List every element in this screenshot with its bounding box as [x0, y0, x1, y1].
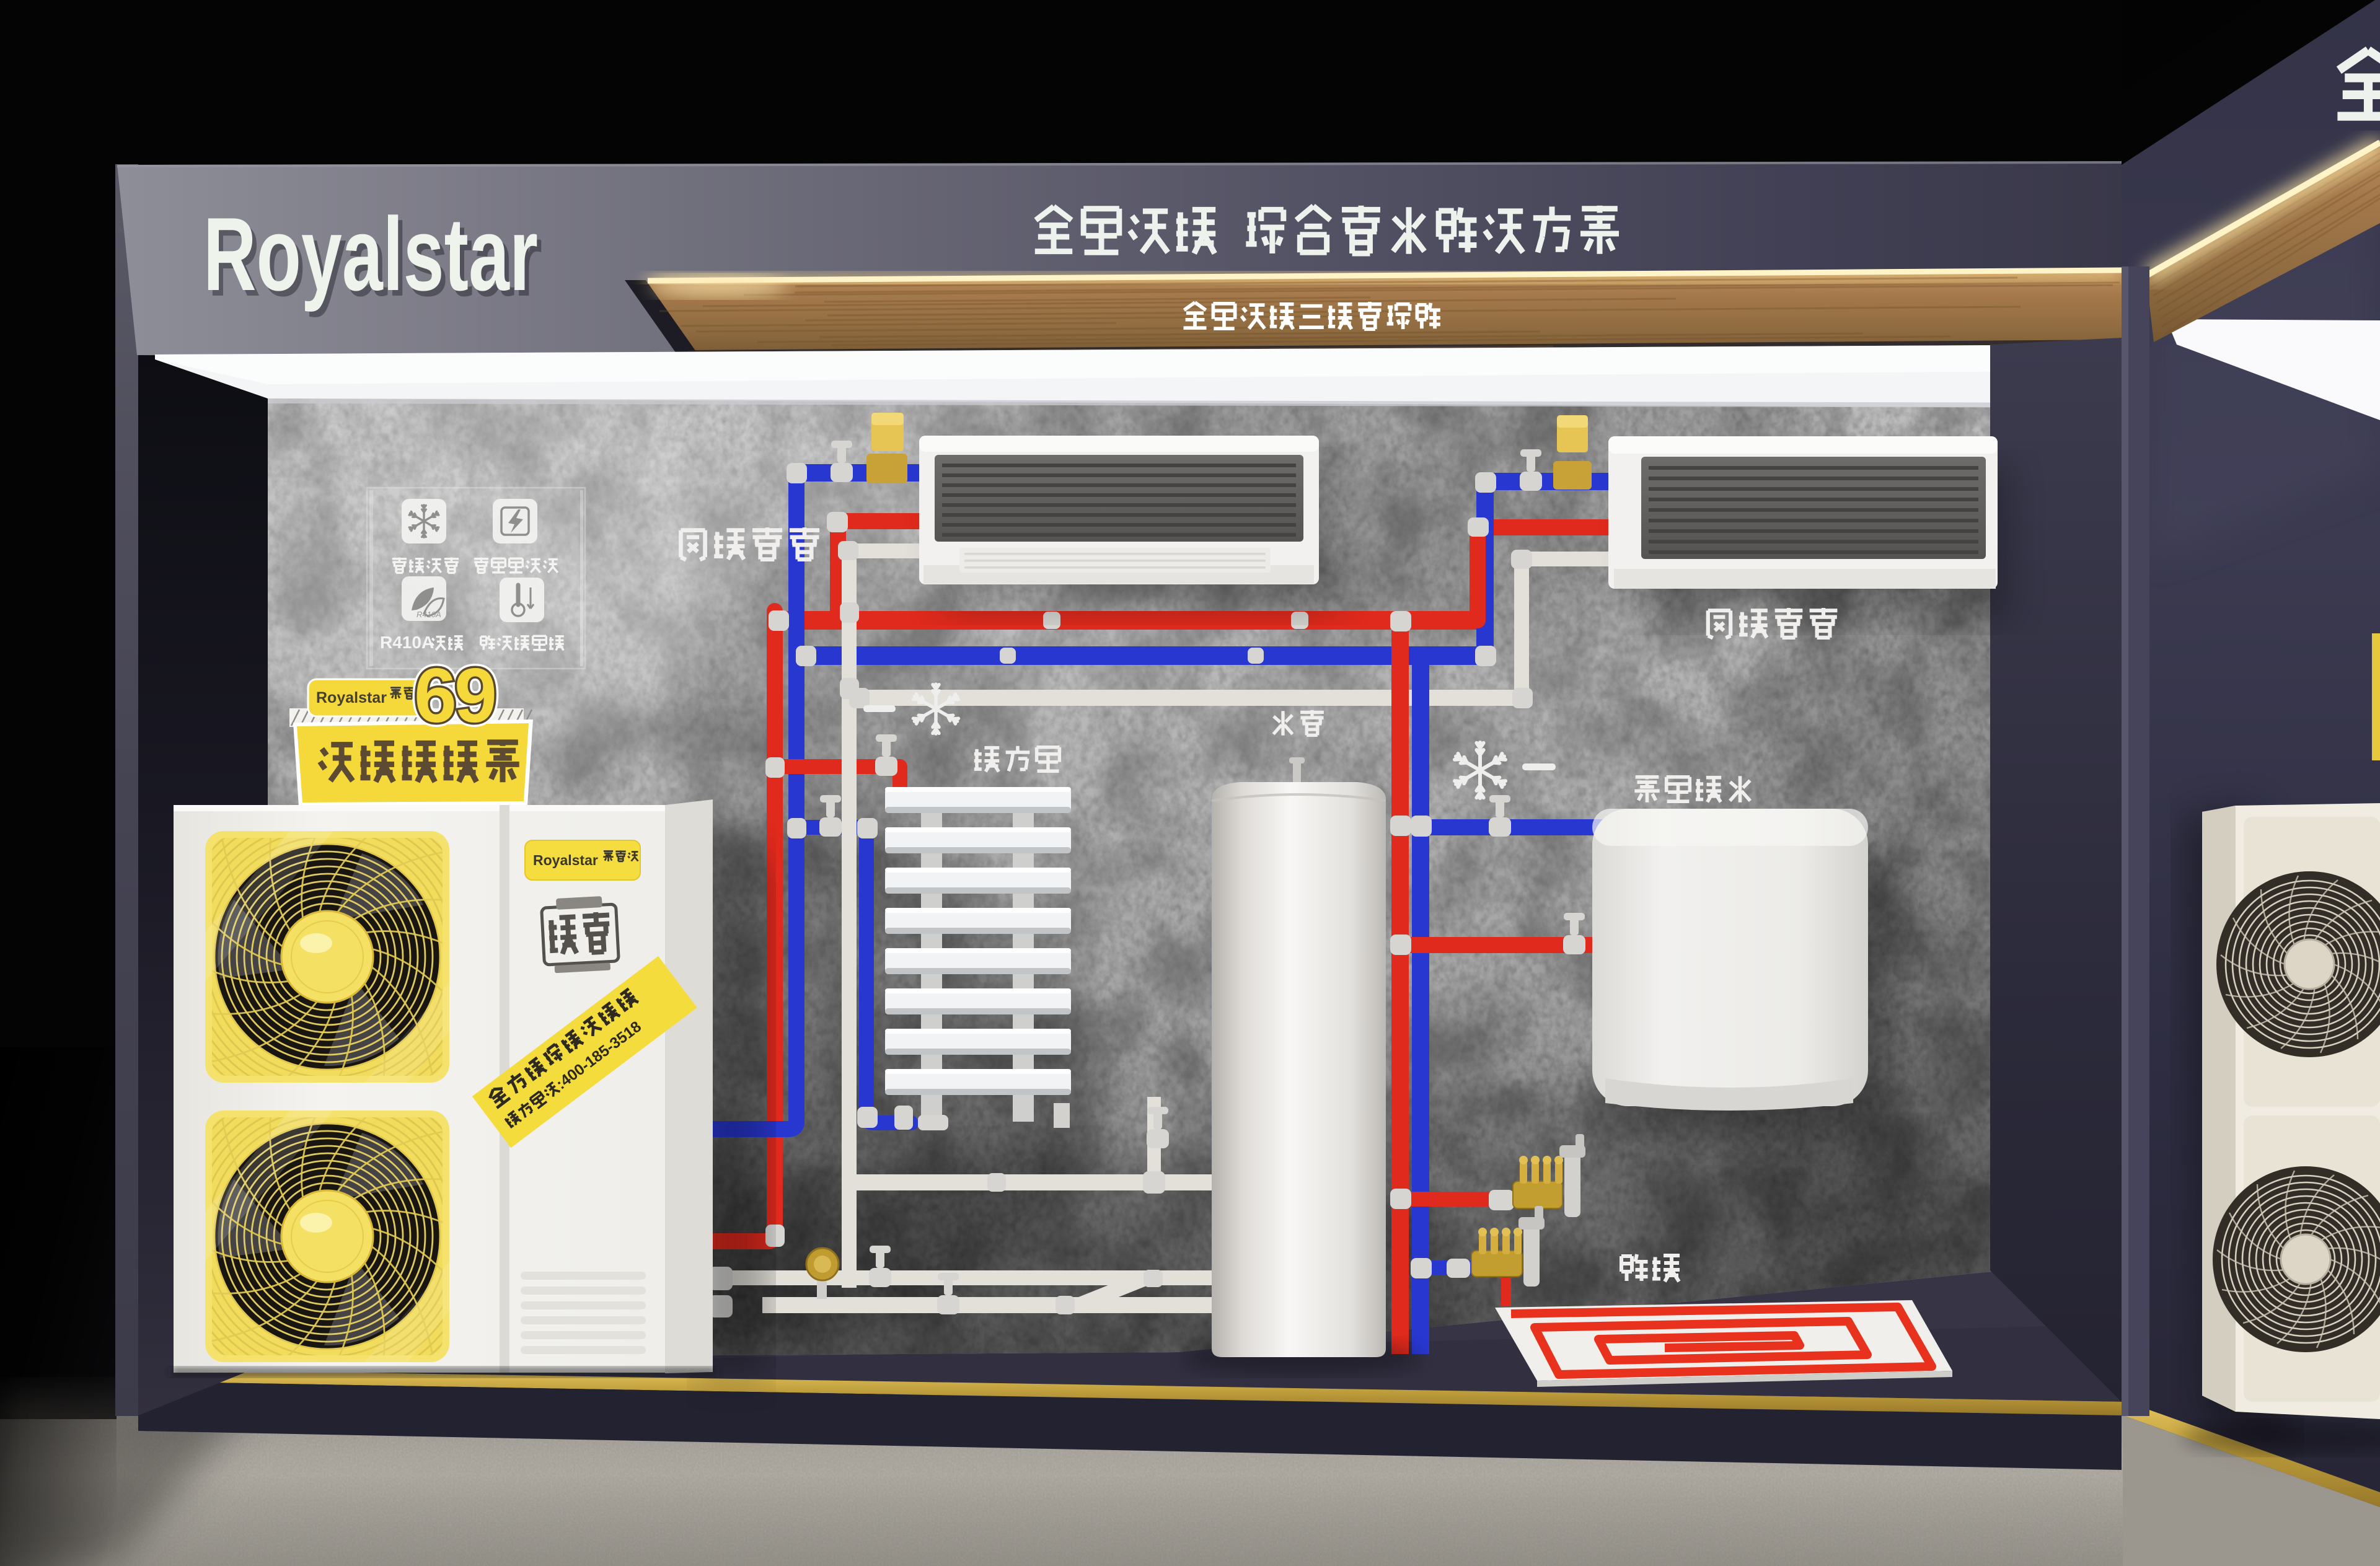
- svg-text:R410A: R410A: [380, 633, 434, 652]
- svg-text:Royalstar: Royalstar: [203, 196, 538, 312]
- svg-text:R410A: R410A: [416, 610, 441, 619]
- svg-text:Royalstar: Royalstar: [533, 852, 598, 868]
- svg-text:Royalstar: Royalstar: [316, 689, 387, 706]
- svg-text:69: 69: [414, 653, 495, 739]
